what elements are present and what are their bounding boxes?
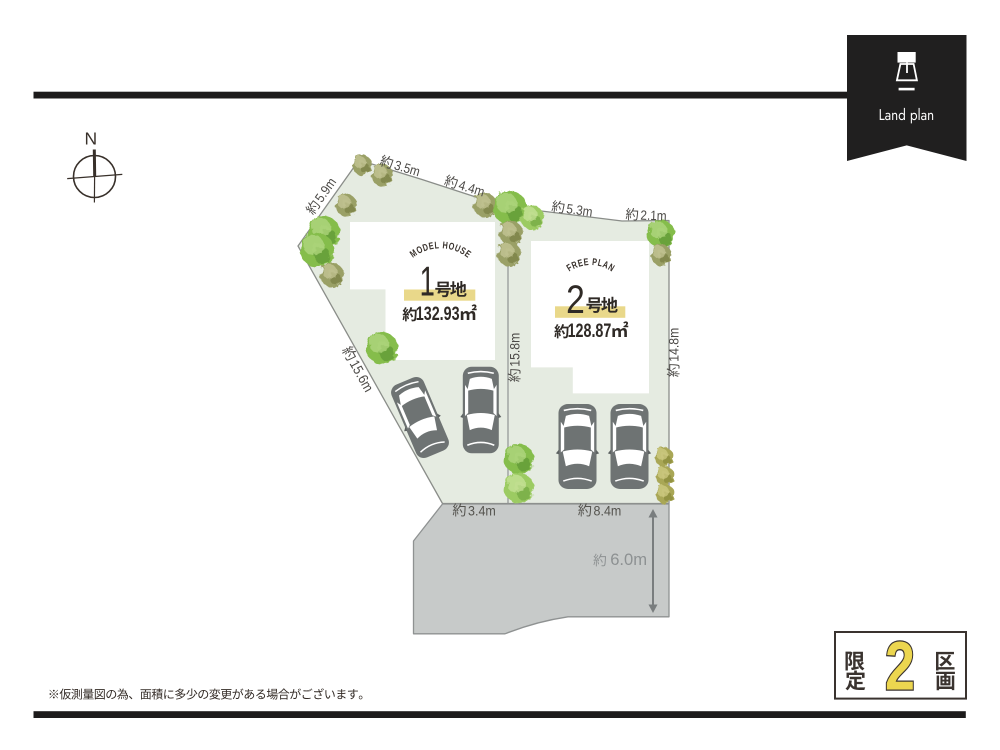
svg-text:2: 2 bbox=[885, 628, 915, 705]
svg-text:2.1m: 2.1m bbox=[640, 208, 667, 224]
svg-text:14.8m: 14.8m bbox=[666, 328, 682, 362]
svg-text:128.87: 128.87 bbox=[568, 319, 612, 342]
svg-text:15.8m: 15.8m bbox=[507, 333, 523, 367]
svg-text:3.4m: 3.4m bbox=[468, 503, 496, 519]
svg-text:2: 2 bbox=[566, 278, 585, 322]
svg-text:6.0m: 6.0m bbox=[610, 550, 647, 569]
svg-text:132.93: 132.93 bbox=[416, 302, 460, 325]
svg-text:1: 1 bbox=[420, 259, 435, 305]
svg-text:8.4m: 8.4m bbox=[594, 503, 622, 519]
svg-text:N: N bbox=[85, 129, 98, 149]
